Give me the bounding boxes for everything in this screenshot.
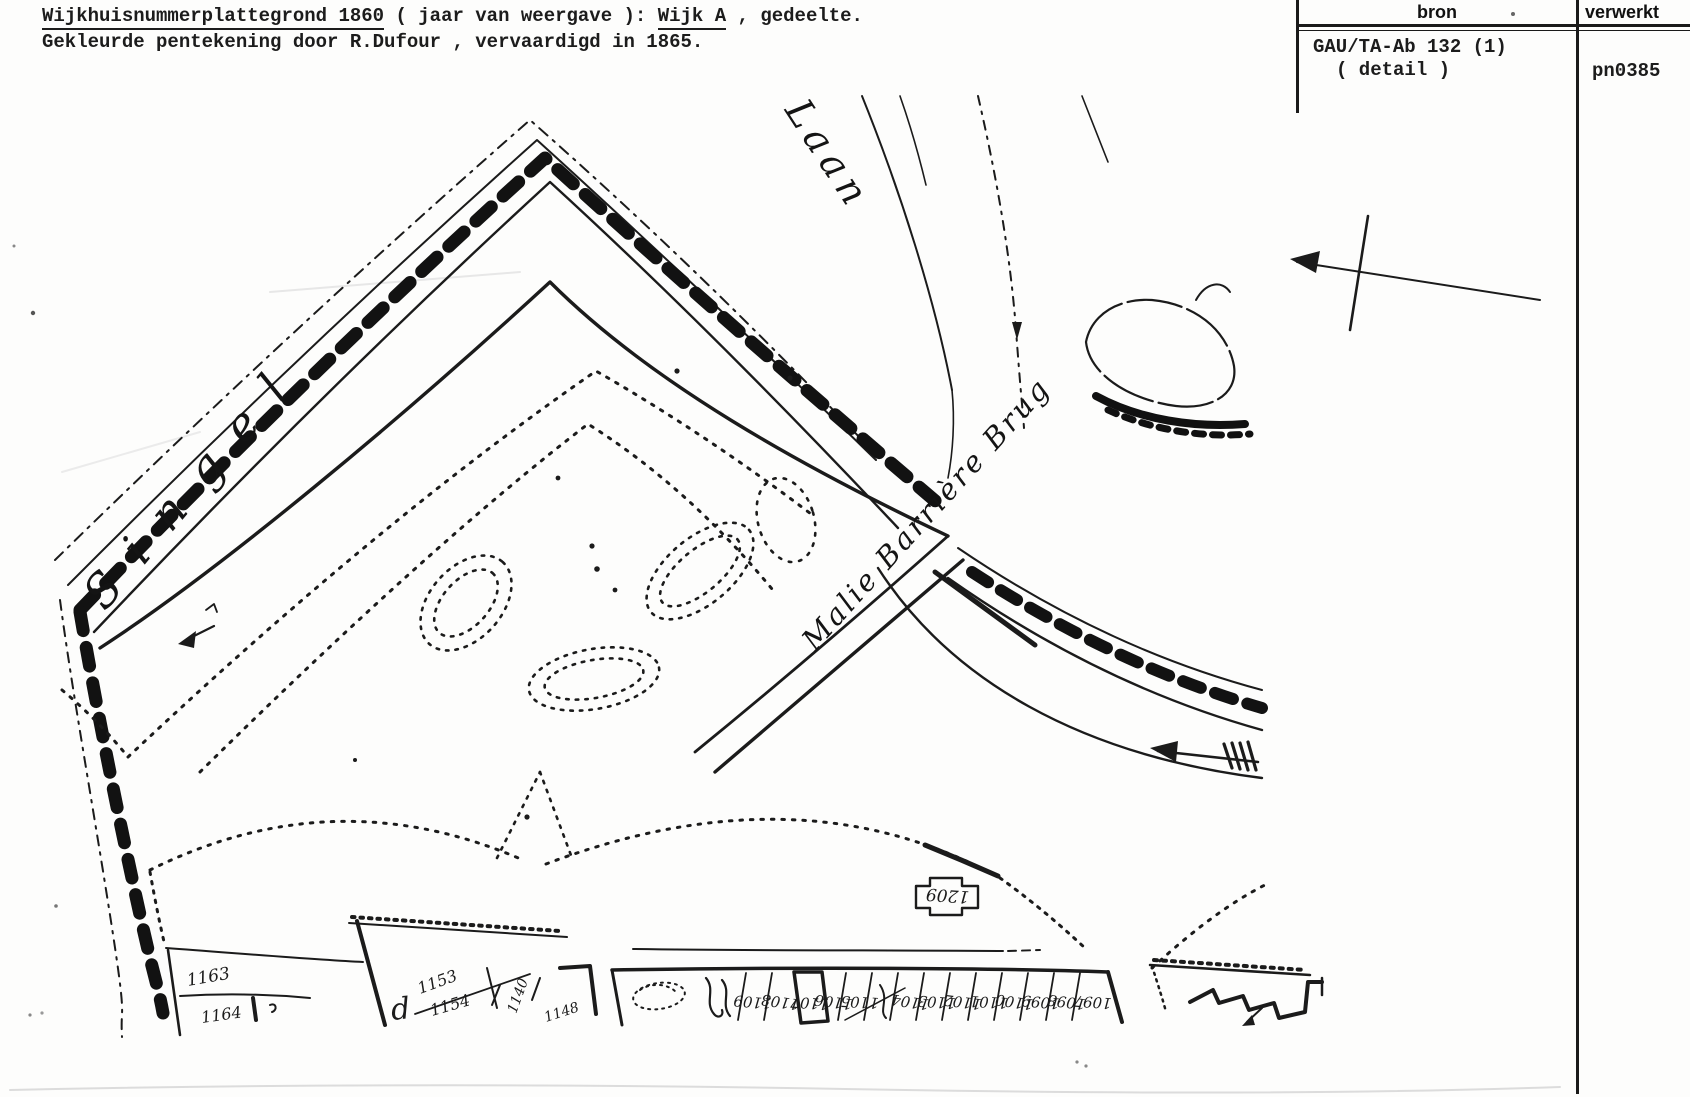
laan-road-line bbox=[862, 96, 952, 390]
flowerbed-ellipse-ne bbox=[747, 471, 825, 569]
scanned-archive-sheet: { "header": { "line1_part1": "Wijkhuisnu… bbox=[0, 0, 1690, 1097]
stray-dots bbox=[353, 368, 793, 819]
verwerkt-value: pn0385 bbox=[1592, 60, 1660, 82]
feathers bbox=[1224, 742, 1256, 770]
singel-script-label: Singel bbox=[72, 343, 316, 619]
specks bbox=[13, 12, 1516, 1068]
wijk-underlined: Wijk A bbox=[658, 5, 726, 30]
arc-mid-heavy-tail bbox=[925, 845, 998, 876]
tree-chain bbox=[80, 158, 940, 610]
parcel-block-west bbox=[168, 950, 310, 1035]
small-arrow-sw bbox=[178, 604, 217, 648]
east-tree-chain bbox=[972, 572, 1262, 708]
south-tree-arcs bbox=[150, 772, 1265, 968]
laan-script-label: Laan bbox=[776, 90, 880, 218]
singel-road bbox=[55, 120, 940, 1037]
bron-value-line1: GAU/TA-Ab 132 (1) bbox=[1313, 36, 1507, 58]
title-underlined: Wijkhuisnummerplattegrond 1860 bbox=[42, 5, 384, 30]
column-header-bron: bron bbox=[1298, 2, 1576, 23]
parcel-1153: 1153 bbox=[415, 966, 460, 998]
svg-text:1105: 1105 bbox=[840, 992, 879, 1012]
arc-west bbox=[150, 821, 523, 870]
boundary-arrowhead bbox=[1012, 322, 1022, 340]
column-header-verwerkt: verwerkt bbox=[1585, 2, 1659, 23]
garden-sketch bbox=[631, 980, 686, 1013]
laan-road-line2 bbox=[900, 96, 926, 185]
short-line-ne bbox=[1082, 96, 1108, 162]
east-road-lower bbox=[948, 578, 1262, 730]
cartouche-number: 1209 bbox=[925, 883, 970, 906]
parcel-1148: 1148 bbox=[542, 1000, 581, 1026]
north-arrow-head bbox=[1290, 251, 1320, 273]
contour-arc-inner bbox=[200, 424, 772, 772]
arc-mid-tail bbox=[1000, 878, 1085, 948]
title-line-1: Wijkhuisnummerplattegrond 1860 ( jaar va… bbox=[42, 5, 863, 27]
table-hline-1 bbox=[1296, 24, 1690, 27]
table-hline-2 bbox=[1296, 30, 1690, 32]
svg-text:1097: 1097 bbox=[1073, 992, 1113, 1013]
strip-numbers: 1109 1108 1107 1106 1105 1104 1103 1102 … bbox=[732, 990, 1112, 1013]
flowerbed-ellipse-west bbox=[402, 538, 529, 668]
parcel-1163b: 1163 bbox=[185, 964, 231, 991]
pond-outline bbox=[1086, 300, 1234, 407]
park-contours bbox=[62, 282, 948, 820]
stal-script-squiggle bbox=[706, 978, 730, 1017]
boundary-dashdot bbox=[978, 96, 1024, 428]
building-block-east bbox=[1150, 960, 1322, 1026]
flowerbed-ellipse-south bbox=[524, 638, 664, 720]
triangle-plot bbox=[497, 772, 572, 858]
title-line-2: Gekleurde pentekening door R.Dufour , ve… bbox=[42, 31, 703, 53]
north-arrow bbox=[1290, 216, 1540, 330]
feathered-arrow bbox=[1150, 741, 1258, 770]
north-area bbox=[862, 96, 1250, 478]
pond-bank-heavy bbox=[1096, 396, 1245, 425]
cursive-d: d bbox=[389, 991, 412, 1028]
ne-curl bbox=[1196, 284, 1230, 300]
table-vline-right bbox=[1576, 0, 1579, 1094]
cartouche: 1209 bbox=[916, 878, 978, 915]
arc-west-tail bbox=[150, 872, 165, 946]
map-drawing: 1209 Singel Laan Malie Barrière Brug 116… bbox=[0, 0, 1690, 1097]
parcel-1154: 1154 bbox=[428, 990, 472, 1019]
parcel-1164: 1164 bbox=[200, 1002, 243, 1026]
parcel-numbers: 1163 1164 1153 1154 1140 1148 1109 1108 … bbox=[185, 964, 1112, 1028]
parcel-strips bbox=[166, 917, 1322, 1035]
flowerbed-ellipse-east bbox=[630, 505, 770, 638]
bron-value-line2: ( detail ) bbox=[1336, 59, 1450, 81]
arc-east bbox=[1152, 885, 1265, 968]
